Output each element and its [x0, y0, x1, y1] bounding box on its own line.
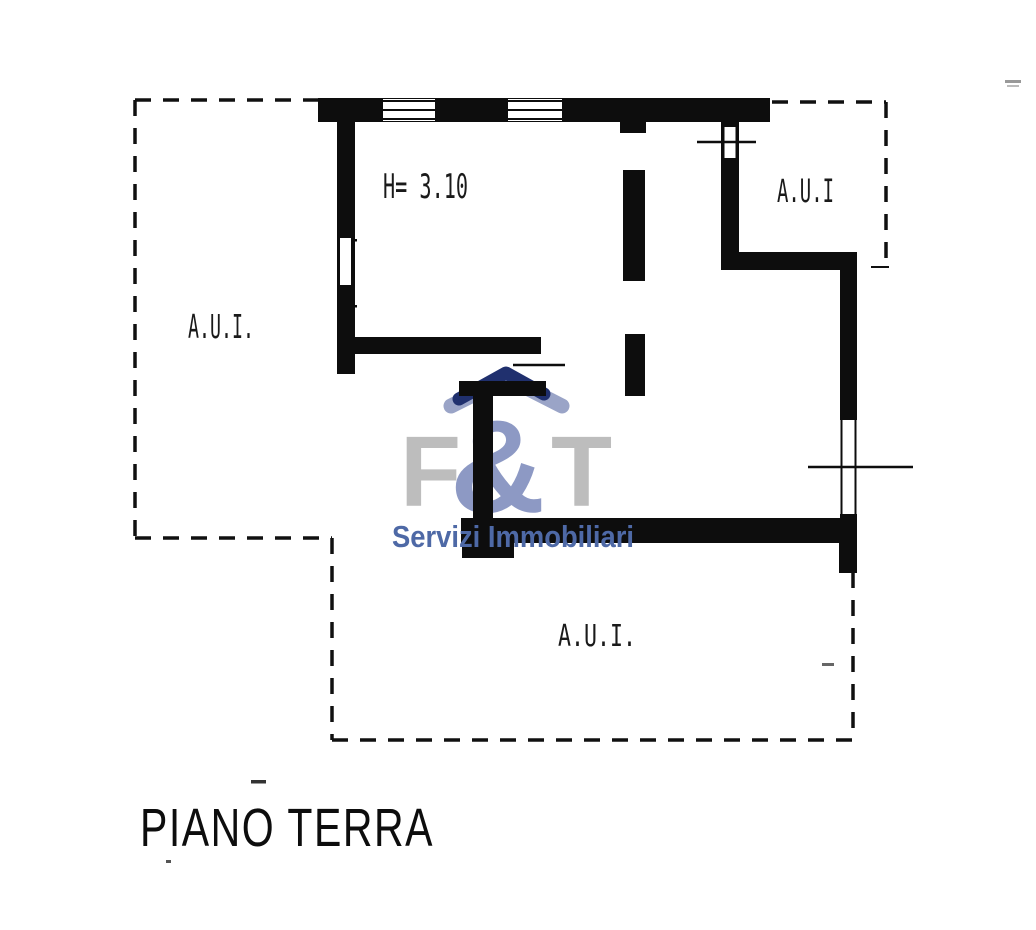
- watermark-logo: F & T: [400, 373, 612, 540]
- wall-top-notch: [620, 122, 646, 133]
- speck-bottom-room: [822, 663, 834, 666]
- wall-topright-horizontal: [721, 252, 857, 270]
- room-label-bottom: A.U.I.: [558, 619, 636, 654]
- speck-top-right-2: [1007, 85, 1019, 87]
- wall-inner-a: [352, 337, 541, 354]
- speck-below-title: [166, 860, 171, 863]
- logo-tagline: Servizi Immobiliari: [392, 519, 634, 554]
- window-top-1: [383, 99, 435, 121]
- speck-top-right: [1005, 80, 1021, 83]
- wall-right-lower: [840, 514, 857, 573]
- logo-letter-t: T: [551, 416, 612, 528]
- logo-ampersand: &: [450, 393, 545, 540]
- wall-right-upper: [840, 259, 857, 420]
- wall-left: [337, 98, 355, 374]
- wall-inner-b: [459, 381, 546, 396]
- speck-above-title: [251, 780, 266, 784]
- floor-plan-drawing: F & T: [0, 0, 1036, 930]
- room-label-left: A.U.I.: [188, 307, 254, 346]
- ceiling-height-note: H= 3.10: [383, 167, 468, 207]
- room-label-top-right: A.U.I: [777, 172, 834, 210]
- door-topright: [697, 127, 756, 158]
- floor-plan-page: F & T: [0, 0, 1036, 930]
- floor-title: PIANO TERRA: [140, 798, 434, 858]
- wall-pillar-upper: [623, 170, 645, 281]
- window-right: [808, 420, 913, 514]
- wall-pillar-lower: [625, 334, 645, 396]
- window-top-2: [508, 99, 562, 121]
